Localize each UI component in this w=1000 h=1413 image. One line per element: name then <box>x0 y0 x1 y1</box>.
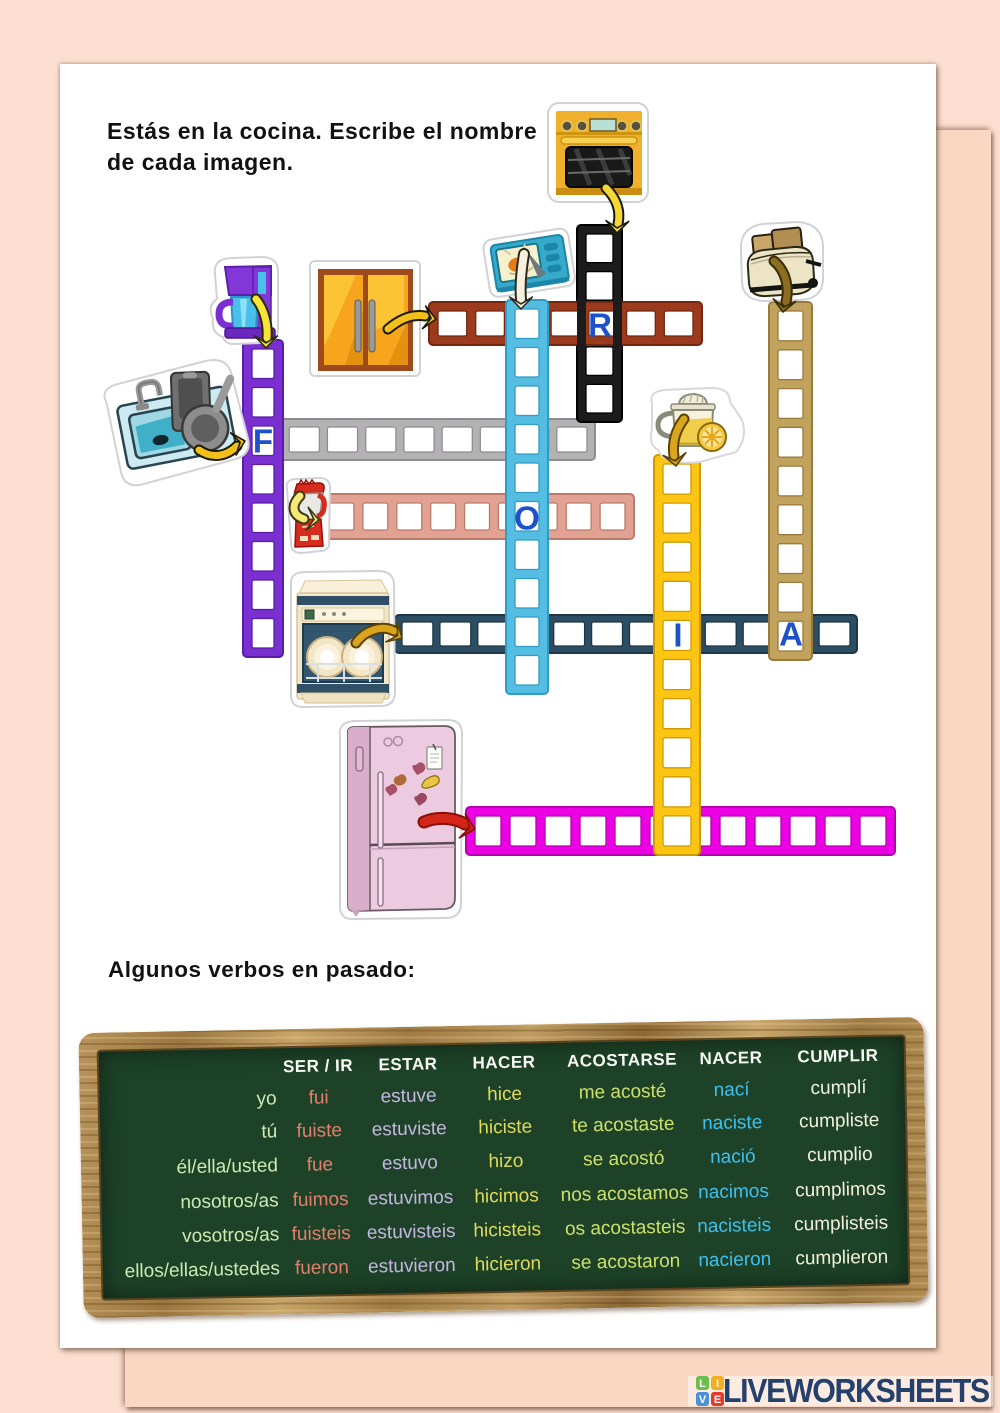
svg-text:A: A <box>779 616 803 653</box>
svg-text:F: F <box>253 423 273 460</box>
svg-text:R: R <box>588 307 612 344</box>
svg-text:L: L <box>699 1378 706 1390</box>
svg-text:V: V <box>699 1394 707 1406</box>
svg-text:O: O <box>514 500 540 537</box>
svg-text:I: I <box>673 617 682 654</box>
svg-text:E: E <box>714 1394 721 1406</box>
svg-text:I: I <box>716 1378 719 1390</box>
